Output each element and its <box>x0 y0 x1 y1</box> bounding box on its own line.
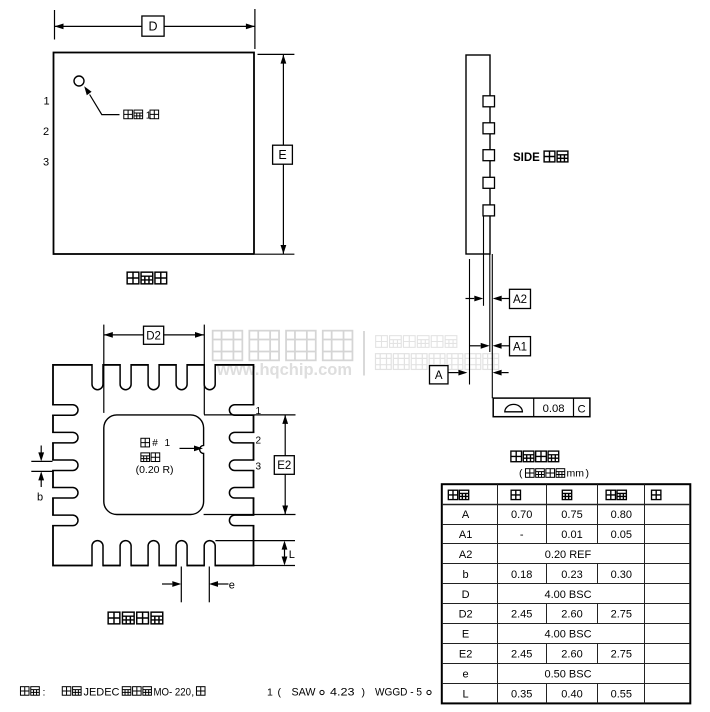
svg-text::: : <box>43 686 46 698</box>
svg-text:0.30: 0.30 <box>611 569 632 581</box>
svg-text:D2: D2 <box>459 609 473 621</box>
svg-text:-: - <box>520 529 524 541</box>
svg-text:C: C <box>578 403 586 415</box>
svg-text:D2: D2 <box>146 330 161 342</box>
svg-text:E: E <box>462 629 469 641</box>
svg-text:2.60: 2.60 <box>561 649 582 661</box>
svg-text:2.45: 2.45 <box>511 649 532 661</box>
svg-text:0.08: 0.08 <box>543 403 565 415</box>
svg-text:b: b <box>37 492 43 504</box>
svg-text:L: L <box>463 688 469 700</box>
svg-text:www.hqchip.com: www.hqchip.com <box>216 361 352 379</box>
svg-text:A: A <box>462 509 470 521</box>
svg-text:0.40: 0.40 <box>561 688 582 700</box>
svg-text:A1: A1 <box>459 529 472 541</box>
svg-text:b: b <box>463 569 469 581</box>
svg-text:A2: A2 <box>459 549 472 561</box>
svg-text:,: , <box>191 686 194 698</box>
svg-text:0.05: 0.05 <box>611 529 632 541</box>
svg-text:4.00 BSC: 4.00 BSC <box>544 629 591 641</box>
svg-text:1: 1 <box>43 96 49 108</box>
svg-text:0.50 BSC: 0.50 BSC <box>544 668 591 680</box>
svg-text:0.20 REF: 0.20 REF <box>545 549 592 561</box>
svg-text:2.45: 2.45 <box>511 609 532 621</box>
svg-text:0.35: 0.35 <box>511 688 532 700</box>
svg-text:0.23: 0.23 <box>561 569 582 581</box>
svg-text:(: ( <box>519 468 523 480</box>
svg-text:D: D <box>148 20 157 34</box>
svg-text:4.23: 4.23 <box>330 686 355 698</box>
svg-text:0.01: 0.01 <box>561 529 582 541</box>
svg-text:0.75: 0.75 <box>561 509 582 521</box>
svg-text:A1: A1 <box>513 341 527 353</box>
svg-text:): ) <box>586 468 590 480</box>
svg-text:L: L <box>289 549 295 561</box>
svg-text:2.60: 2.60 <box>561 609 582 621</box>
svg-text:0.18: 0.18 <box>511 569 532 581</box>
svg-text:E2: E2 <box>459 649 472 661</box>
svg-text:SAW: SAW <box>292 686 317 698</box>
svg-text:D: D <box>462 589 470 601</box>
svg-text:MO- 220: MO- 220 <box>154 686 192 698</box>
svg-text:WGGD - 5: WGGD - 5 <box>375 686 422 698</box>
svg-text:): ) <box>362 686 366 698</box>
svg-text:A: A <box>435 370 443 382</box>
svg-text:2: 2 <box>256 435 262 446</box>
svg-text:e: e <box>229 580 235 592</box>
svg-text:0.80: 0.80 <box>611 509 632 521</box>
svg-text:0.55: 0.55 <box>611 688 632 700</box>
svg-text:1: 1 <box>146 111 152 122</box>
svg-text:mm: mm <box>567 468 585 480</box>
svg-text:(0.20 R): (0.20 R) <box>136 464 174 476</box>
svg-text:3: 3 <box>256 461 262 472</box>
svg-text:SIDE: SIDE <box>513 152 540 164</box>
svg-text:E: E <box>278 148 286 162</box>
svg-text:e: e <box>463 668 469 680</box>
svg-text:4.00 BSC: 4.00 BSC <box>544 589 591 601</box>
svg-text:3: 3 <box>43 156 49 168</box>
svg-text:E2: E2 <box>277 460 291 472</box>
svg-text:1: 1 <box>267 686 273 698</box>
svg-text:2.75: 2.75 <box>611 609 632 621</box>
svg-text:JEDEC: JEDEC <box>84 686 120 698</box>
svg-text:2.75: 2.75 <box>611 649 632 661</box>
svg-text:0.70: 0.70 <box>511 509 532 521</box>
svg-text:A2: A2 <box>513 294 527 306</box>
svg-text:(: ( <box>278 686 282 698</box>
svg-text:#: # <box>152 438 158 449</box>
svg-text:2: 2 <box>43 126 49 138</box>
svg-text:1: 1 <box>165 438 171 449</box>
